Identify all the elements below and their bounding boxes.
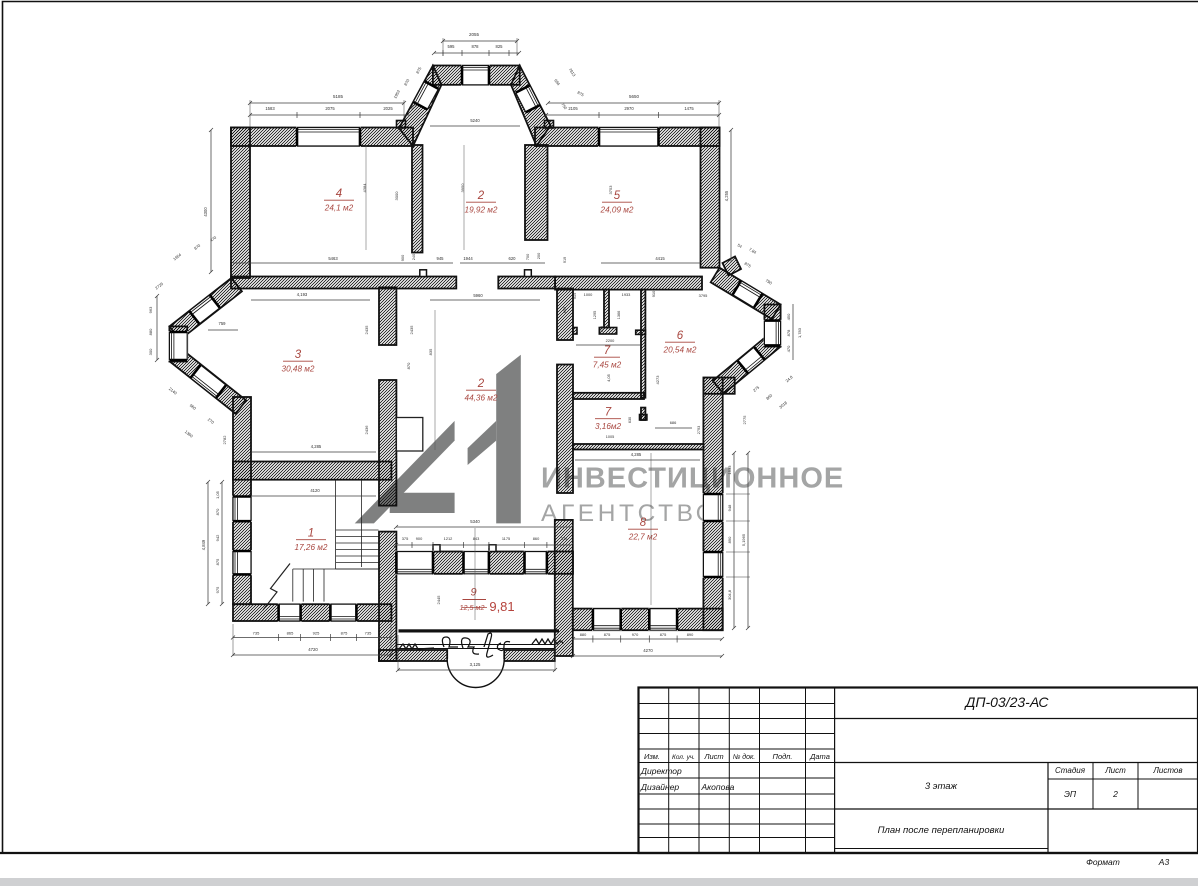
svg-text:4,05: 4,05: [606, 373, 611, 382]
svg-text:630: 630: [628, 417, 632, 423]
svg-text:686: 686: [670, 420, 677, 425]
svg-text:300: 300: [148, 348, 153, 355]
svg-text:20,54 м2: 20,54 м2: [663, 346, 697, 355]
svg-text:2200: 2200: [606, 338, 615, 343]
svg-text:970: 970: [632, 632, 639, 637]
svg-text:4415: 4415: [655, 256, 665, 261]
svg-text:5340: 5340: [470, 519, 480, 524]
svg-text:4: 4: [336, 188, 342, 200]
svg-text:910: 910: [651, 290, 656, 297]
svg-text:9: 9: [470, 587, 476, 599]
svg-text:304,8: 304,8: [727, 589, 732, 600]
svg-text:890: 890: [687, 632, 694, 637]
svg-text:19,92 м2: 19,92 м2: [465, 206, 498, 215]
svg-text:5,1965: 5,1965: [741, 533, 746, 546]
svg-text:375: 375: [402, 536, 409, 541]
svg-text:Лист: Лист: [1104, 766, 1126, 775]
svg-text:1: 1: [308, 528, 314, 540]
svg-text:2435: 2435: [409, 325, 414, 335]
svg-text:1212: 1212: [444, 536, 453, 541]
svg-text:30,48 м2: 30,48 м2: [282, 365, 315, 374]
svg-text:2: 2: [477, 190, 485, 202]
svg-text:3000: 3000: [394, 191, 399, 201]
svg-text:7: 7: [604, 345, 611, 357]
svg-text:4300: 4300: [203, 207, 208, 217]
svg-text:875: 875: [604, 632, 611, 637]
svg-text:2793: 2793: [697, 426, 701, 434]
svg-text:870: 870: [406, 362, 411, 369]
svg-text:470: 470: [786, 345, 791, 352]
svg-text:2782: 2782: [222, 435, 227, 445]
svg-text:843: 843: [473, 536, 480, 541]
svg-text:963: 963: [148, 306, 153, 313]
svg-text:3,16м2: 3,16м2: [595, 422, 622, 431]
svg-text:Стадия: Стадия: [1055, 766, 1086, 775]
svg-text:2775: 2775: [742, 415, 747, 425]
svg-text:3795: 3795: [699, 293, 708, 298]
svg-text:5960: 5960: [473, 293, 483, 298]
svg-text:2445: 2445: [436, 595, 441, 605]
svg-text:875: 875: [341, 631, 348, 636]
svg-text:Изм.: Изм.: [644, 752, 660, 761]
svg-text:825: 825: [496, 44, 504, 49]
svg-text:875: 875: [660, 632, 667, 637]
svg-text:948: 948: [727, 504, 732, 511]
svg-text:2: 2: [1112, 789, 1118, 799]
svg-text:1,05: 1,05: [215, 490, 220, 499]
svg-text:7: 7: [605, 407, 612, 419]
svg-text:1583: 1583: [265, 106, 275, 111]
svg-text:3,125: 3,125: [470, 662, 481, 667]
svg-text:890: 890: [727, 536, 732, 543]
svg-text:1035: 1035: [600, 326, 604, 334]
svg-text:44,36 м2: 44,36 м2: [465, 394, 498, 403]
svg-text:1005: 1005: [606, 435, 614, 439]
svg-text:2075: 2075: [325, 106, 335, 111]
svg-text:2: 2: [477, 378, 485, 390]
svg-text:7,45 м2: 7,45 м2: [593, 361, 622, 370]
svg-text:2055: 2055: [469, 32, 480, 37]
svg-text:595: 595: [448, 44, 456, 49]
svg-text:4120: 4120: [310, 488, 320, 493]
svg-text:975: 975: [215, 586, 220, 593]
svg-text:Акопова: Акопова: [701, 782, 735, 792]
svg-text:4270: 4270: [643, 648, 653, 653]
svg-text:А3: А3: [1158, 857, 1170, 867]
svg-text:22,7 м2: 22,7 м2: [628, 533, 658, 542]
svg-text:1295: 1295: [593, 311, 597, 319]
svg-text:5: 5: [614, 190, 621, 202]
svg-text:17,26 м2: 17,26 м2: [295, 543, 328, 552]
svg-text:Дата: Дата: [809, 752, 830, 761]
svg-text:№ док.: № док.: [733, 753, 756, 761]
svg-text:878: 878: [472, 44, 480, 49]
svg-text:4720: 4720: [308, 647, 318, 652]
svg-text:200: 200: [536, 252, 541, 259]
svg-text:Лист: Лист: [703, 752, 723, 761]
svg-text:4,255: 4,255: [724, 190, 729, 201]
svg-text:835: 835: [428, 348, 433, 355]
svg-text:1,783: 1,783: [797, 327, 802, 338]
svg-text:24,09 м2: 24,09 м2: [600, 206, 634, 215]
svg-text:942: 942: [215, 534, 220, 541]
svg-text:2025: 2025: [383, 106, 393, 111]
svg-text:1944: 1944: [463, 256, 473, 261]
svg-text:1475: 1475: [684, 106, 694, 111]
svg-text:900: 900: [400, 254, 405, 261]
svg-text:3 этаж: 3 этаж: [925, 781, 958, 792]
svg-text:878: 878: [786, 329, 791, 336]
svg-text:5240: 5240: [470, 118, 480, 123]
svg-text:375: 375: [561, 536, 568, 541]
svg-text:620: 620: [509, 256, 517, 261]
svg-text:900: 900: [416, 536, 423, 541]
svg-text:4,285: 4,285: [311, 444, 322, 449]
svg-text:865: 865: [287, 631, 294, 636]
svg-text:1933: 1933: [622, 292, 631, 297]
svg-text:240: 240: [411, 253, 416, 260]
svg-text:4,849: 4,849: [201, 539, 206, 550]
svg-text:880: 880: [148, 328, 153, 335]
svg-text:ДП-03/23-АС: ДП-03/23-АС: [963, 694, 1049, 710]
svg-text:ЭП: ЭП: [1064, 789, 1077, 799]
svg-text:2970: 2970: [624, 106, 634, 111]
svg-text:1366: 1366: [617, 311, 621, 319]
svg-text:860: 860: [533, 536, 540, 541]
svg-text:5185: 5185: [333, 94, 344, 99]
svg-text:8: 8: [640, 517, 647, 529]
svg-text:Кол. уч.: Кол. уч.: [672, 754, 695, 761]
svg-text:875: 875: [215, 558, 220, 565]
svg-text:1000: 1000: [584, 292, 593, 297]
svg-text:4,285: 4,285: [631, 452, 642, 457]
svg-text:Листов: Листов: [1152, 766, 1182, 775]
svg-text:2105: 2105: [568, 106, 578, 111]
svg-text:919: 919: [563, 257, 567, 263]
svg-text:5463: 5463: [328, 256, 338, 261]
svg-text:Дизайнер: Дизайнер: [640, 782, 679, 792]
svg-text:915: 915: [572, 293, 577, 300]
svg-text:735: 735: [253, 631, 260, 636]
svg-text:9,81: 9,81: [489, 599, 514, 614]
svg-text:Подп.: Подп.: [773, 752, 793, 761]
svg-text:6: 6: [677, 330, 684, 342]
svg-text:Директор: Директор: [640, 766, 682, 776]
svg-text:24,1 м2: 24,1 м2: [324, 204, 354, 213]
svg-text:925: 925: [313, 631, 320, 636]
svg-text:1533: 1533: [727, 465, 732, 475]
svg-text:945: 945: [437, 256, 445, 261]
svg-text:4273: 4273: [655, 375, 660, 385]
svg-text:3: 3: [295, 349, 302, 361]
svg-text:5650: 5650: [629, 94, 640, 99]
svg-text:Формат: Формат: [1086, 857, 1120, 867]
svg-text:2436: 2436: [364, 425, 369, 435]
svg-text:ИНВЕСТИЦИОННОЕ: ИНВЕСТИЦИОННОЕ: [541, 463, 844, 495]
svg-text:1175: 1175: [502, 536, 510, 541]
svg-text:450: 450: [786, 313, 791, 320]
svg-text:3753: 3753: [608, 185, 613, 195]
svg-text:План после перепланировки: План после перепланировки: [878, 825, 1005, 836]
svg-text:2435: 2435: [364, 325, 369, 335]
svg-text:4,193: 4,193: [297, 292, 308, 297]
svg-text:870: 870: [215, 508, 220, 515]
svg-text:859: 859: [563, 307, 567, 313]
svg-text:735: 735: [365, 631, 372, 636]
svg-text:880: 880: [580, 632, 587, 637]
svg-text:700: 700: [525, 253, 530, 260]
svg-text:759: 759: [219, 321, 227, 326]
